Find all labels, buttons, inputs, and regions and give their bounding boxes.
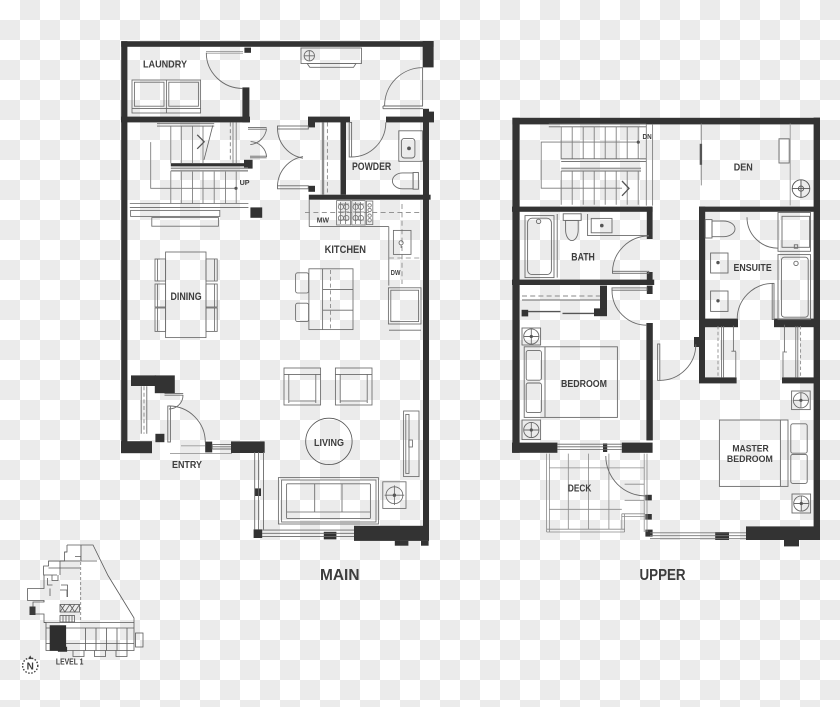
svg-text:DW: DW: [391, 268, 401, 277]
svg-text:BEDROOM: BEDROOM: [727, 454, 773, 465]
svg-text:DN: DN: [643, 132, 652, 141]
svg-text:BATH: BATH: [571, 251, 595, 263]
svg-text:POWDER: POWDER: [352, 161, 391, 173]
svg-text:DEN: DEN: [734, 163, 753, 174]
svg-text:DINING: DINING: [171, 291, 202, 303]
svg-text:UP: UP: [240, 178, 250, 187]
svg-text:DECK: DECK: [568, 484, 592, 495]
svg-text:MASTER: MASTER: [732, 444, 768, 455]
svg-text:MW: MW: [317, 215, 330, 224]
svg-text:BEDROOM: BEDROOM: [561, 379, 607, 390]
svg-text:ENTRY: ENTRY: [172, 460, 202, 471]
svg-text:KITCHEN: KITCHEN: [325, 244, 366, 256]
svg-text:UPPER: UPPER: [640, 567, 686, 584]
svg-text:LEVEL 1: LEVEL 1: [56, 656, 84, 666]
svg-text:N: N: [27, 661, 34, 672]
svg-text:LAUNDRY: LAUNDRY: [143, 59, 187, 70]
svg-text:MAIN: MAIN: [320, 567, 360, 584]
svg-text:LIVING: LIVING: [314, 438, 344, 449]
svg-text:ENSUITE: ENSUITE: [734, 263, 772, 274]
